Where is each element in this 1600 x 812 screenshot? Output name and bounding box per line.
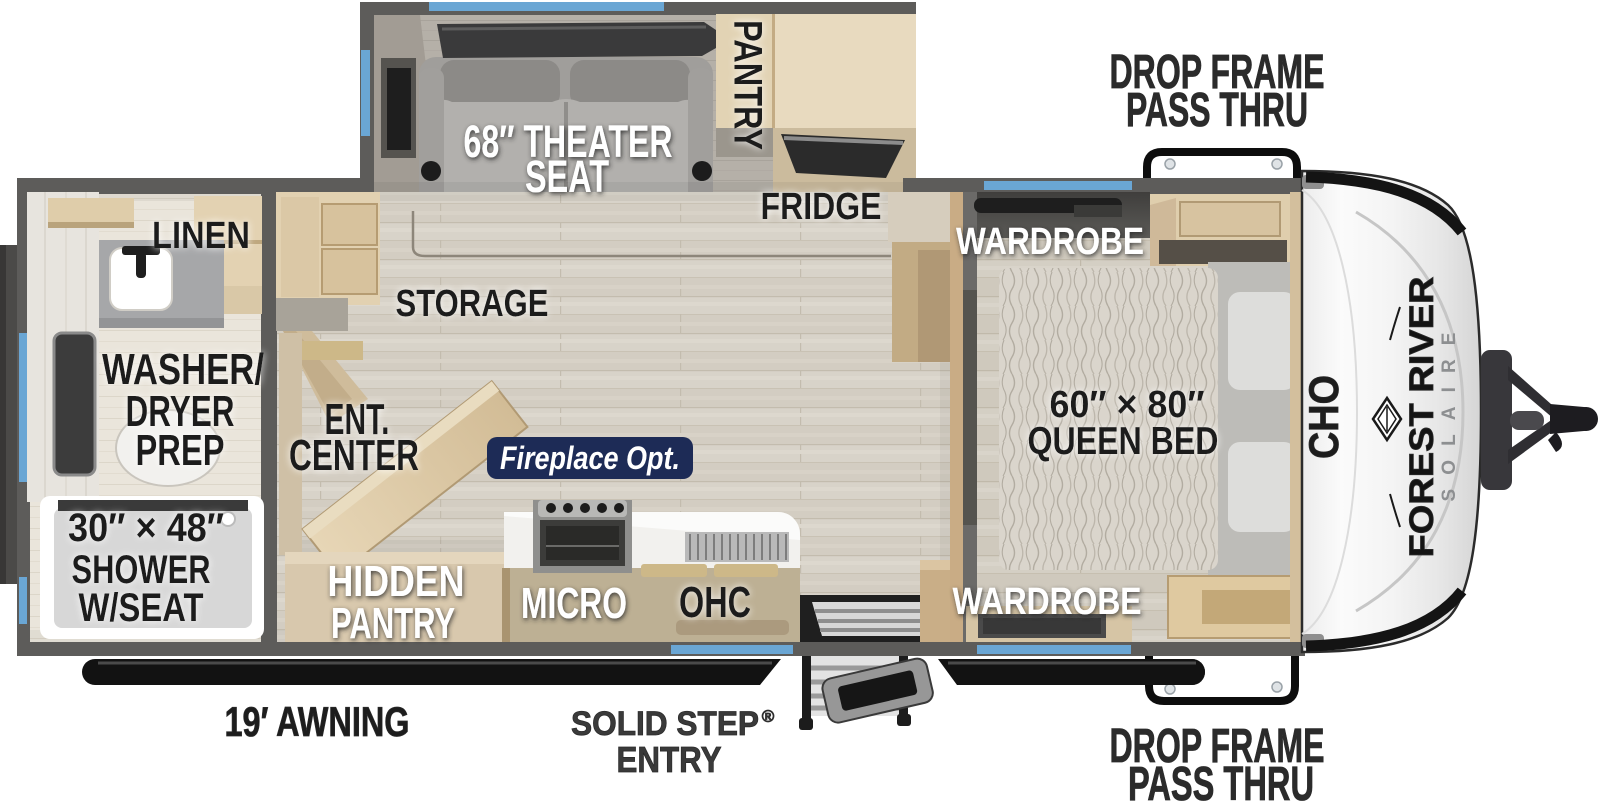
svg-text:ENTRY: ENTRY [617,739,722,780]
svg-text:CHO: CHO [1300,375,1347,459]
svg-text:CENTER: CENTER [289,431,419,480]
svg-text:PASS THRU: PASS THRU [1128,758,1314,811]
svg-text:WARDROBE: WARDROBE [956,221,1144,263]
svg-text:FRIDGE: FRIDGE [761,186,882,228]
svg-text:Fireplace Opt.: Fireplace Opt. [500,440,680,476]
svg-text:PASS THRU: PASS THRU [1126,84,1308,137]
svg-text:FOREST RIVER: FOREST RIVER [1403,277,1441,558]
svg-text:LINEN: LINEN [152,215,250,257]
svg-text:QUEEN BED: QUEEN BED [1028,420,1219,463]
svg-text:STORAGE: STORAGE [396,283,549,325]
svg-text:SEAT: SEAT [525,151,609,202]
svg-text:®: ® [762,707,775,726]
svg-text:PANTRY: PANTRY [331,599,455,648]
svg-text:30″ × 48″: 30″ × 48″ [68,506,224,550]
svg-text:19′ AWNING: 19′ AWNING [225,698,410,745]
svg-text:WARDROBE: WARDROBE [953,581,1142,623]
svg-text:W/SEAT: W/SEAT [79,586,204,630]
svg-text:PREP: PREP [136,426,225,475]
svg-text:PANTRY: PANTRY [725,20,769,150]
svg-text:SOLID STEP: SOLID STEP [571,705,759,743]
svg-text:OHC: OHC [679,578,751,627]
svg-text:MICRO: MICRO [521,579,627,628]
